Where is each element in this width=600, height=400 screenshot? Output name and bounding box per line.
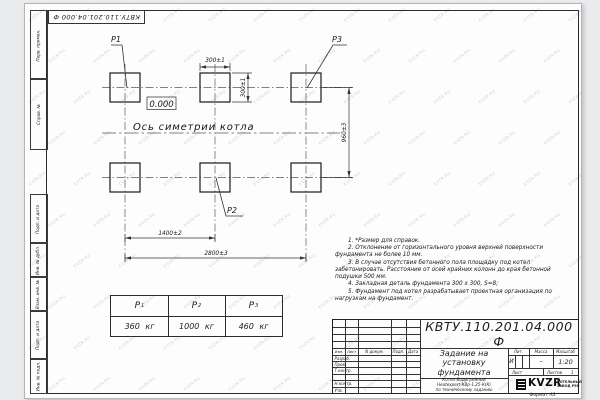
tb-listov-value: 1 bbox=[571, 370, 574, 375]
frame-column-cell-inv-dubl: Инв. № дубл. bbox=[30, 242, 48, 278]
tb-col-data: Дата bbox=[406, 349, 420, 355]
kvzr-logo-caption: КОТЕЛЬНЫЙ ЗАВОД РЭП bbox=[557, 380, 582, 388]
note-item: 3. В случае отсутствия бетонного пола пл… bbox=[335, 260, 579, 282]
format-label: Формат А3 bbox=[505, 393, 580, 398]
tb-col-podp: Подп. bbox=[391, 349, 406, 355]
title-block: Изм. Лист N докум. Подп. Дата Разраб. Пр… bbox=[332, 319, 579, 394]
load-table-header: P1 bbox=[111, 296, 168, 316]
tb-list-label: Лист bbox=[512, 370, 522, 375]
drawing-title: Задание на установку фундамента bbox=[420, 348, 508, 378]
note-item: 5. Фундамент под котел разрабатывает про… bbox=[335, 289, 579, 303]
frame-column-label: Перв. примен. bbox=[37, 29, 42, 61]
tb-row-prov: Пров. bbox=[335, 362, 347, 367]
frame-column-label: Взам. инв. № bbox=[37, 279, 42, 308]
load-table: P1 P2 P3 360 кг 1000 кг 460 кг bbox=[110, 295, 283, 337]
note-item: 1. *Размер для справок. bbox=[335, 238, 579, 245]
watermark-text: KVZR.RU bbox=[28, 170, 47, 186]
load-table-value: 1000 кг bbox=[168, 316, 225, 336]
kvzr-logo-icon bbox=[516, 379, 526, 390]
drawing-sheet-canvas: KVZR.RUKVZR.RUKVZR.RUKVZR.RUKVZR.RUKVZR.… bbox=[0, 0, 600, 400]
doc-number-stamp: КВТУ.110.201.04.000 Ф bbox=[48, 10, 145, 24]
title-block-doc-number: КВТУ.110.201.04.000 Ф bbox=[420, 320, 578, 348]
tb-row-utv: Утв. bbox=[335, 388, 343, 393]
frame-column-label: Подп. и дата bbox=[37, 204, 42, 233]
tb-row-tkontr: Т.контр. bbox=[335, 368, 352, 373]
frame-column-label: Инв. № подл. bbox=[37, 361, 42, 391]
frame-column-cell-perv-primen: Перв. примен. bbox=[30, 10, 48, 80]
load-table-value: 360 кг bbox=[111, 316, 168, 336]
tb-lit-value: И bbox=[508, 355, 515, 368]
frame-column-cell-sprav-n: Справ. № bbox=[30, 78, 48, 150]
frame-column-cell-podp-data-2: Подп. и дата bbox=[30, 310, 48, 360]
frame-column-cell-inv-podl: Инв. № подл. bbox=[30, 358, 48, 394]
tb-lit-header: Лит. bbox=[508, 349, 529, 355]
doc-number-stamp-text: КВТУ.110.201.04.000 Ф bbox=[53, 13, 140, 21]
tb-row-nkontr: Н.контр. bbox=[335, 381, 353, 386]
tb-col-ndokum: N докум. bbox=[358, 349, 391, 355]
frame-column-cell-vzam-inv: Взам. инв. № bbox=[30, 276, 48, 312]
tb-mass-header: Масса bbox=[529, 349, 553, 355]
note-item: 4. Закладная деталь фундамента 300 x 300… bbox=[335, 281, 579, 288]
drawing-subtitle: Котел Водогрейный Heatexpert-КВр-1,25-К(… bbox=[420, 378, 508, 393]
tb-scale-header: Масштаб bbox=[553, 349, 578, 355]
frame-column-label: Справ. № bbox=[37, 104, 42, 125]
note-item: 2. Отклонение от горизонтального уровня … bbox=[335, 245, 579, 259]
frame-column-cell-podp-data-1: Подп. и дата bbox=[30, 194, 48, 244]
tb-col-list: Лист bbox=[345, 349, 358, 355]
notes-list: 1. *Размер для справок. 2. Отклонение от… bbox=[335, 238, 579, 303]
tb-listov-label: Листов bbox=[547, 370, 562, 375]
frame-column-label: Подп. и дата bbox=[37, 320, 42, 349]
tb-col-izm: Изм. bbox=[333, 349, 345, 355]
load-table-header: P2 bbox=[168, 296, 225, 316]
frame-column-label: Инв. № дубл. bbox=[37, 245, 42, 274]
tb-scale-value: 1:20 bbox=[553, 355, 578, 368]
tb-row-razrab: Разраб. bbox=[335, 356, 351, 361]
load-table-value: 460 кг bbox=[225, 316, 282, 336]
load-table-header: P3 bbox=[225, 296, 282, 316]
tb-mass-value: – bbox=[529, 355, 553, 368]
